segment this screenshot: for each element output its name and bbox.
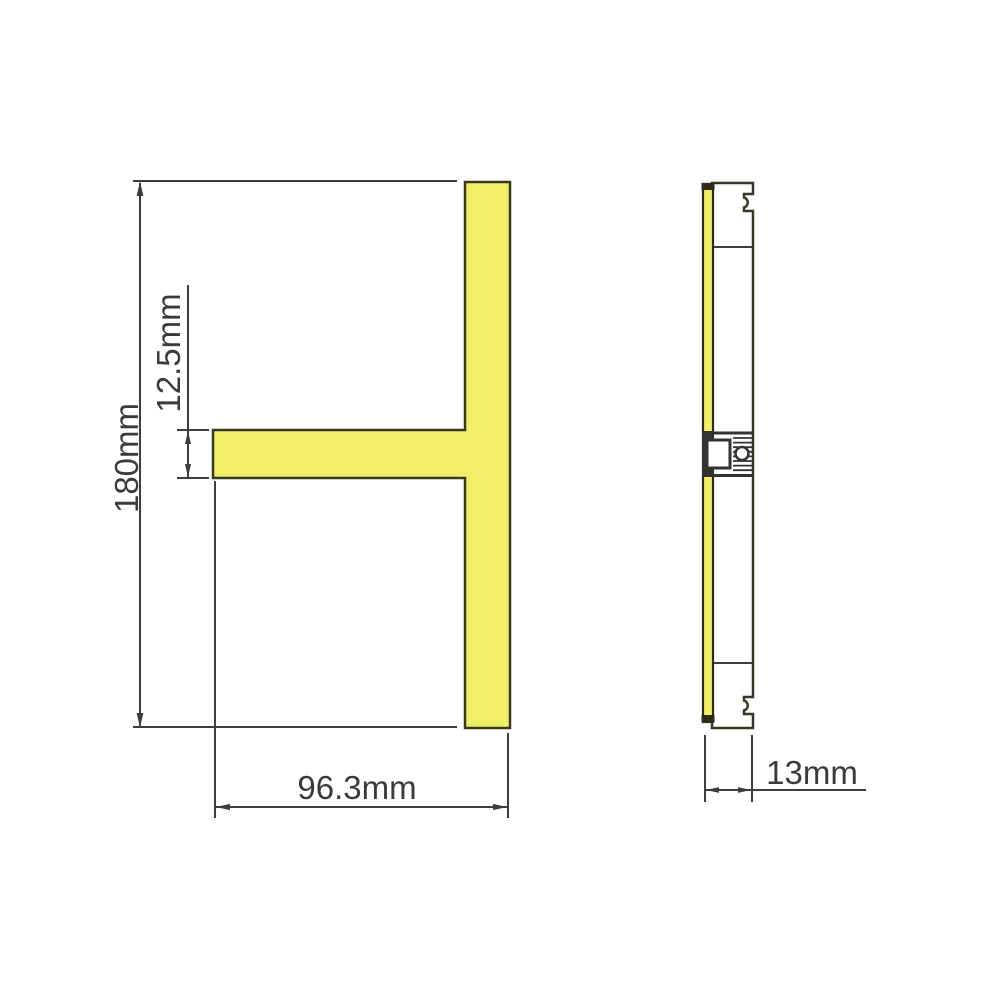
drawing-page: 180mm 12.5mm 96.3mm [0,0,1000,1000]
dimension-arm-thickness: 12.5mm [150,285,209,478]
arrow-right-icon [493,804,507,810]
arrow-up-icon [137,182,144,197]
height-dimension-label: 180mm [108,403,145,513]
technical-drawing-canvas: 180mm 12.5mm 96.3mm [0,0,1000,1000]
arrow-up-icon [185,431,191,444]
arrow-left-icon [706,787,719,793]
depth-dimension-label: 13mm [766,754,858,791]
led-strip-cap-bottom [702,715,715,722]
side-view: 13mm [702,183,867,802]
led-strip-cap-top [702,183,715,190]
width-dimension-label: 96.3mm [297,769,416,806]
arrow-left-icon [216,804,230,810]
clip-screw-icon [736,447,749,460]
arm-thickness-label: 12.5mm [150,293,187,412]
arrow-down-icon [185,464,191,477]
front-view: 180mm 12.5mm 96.3mm [108,181,510,818]
dimension-depth: 13mm [705,735,866,802]
profile-front-shape [213,182,510,728]
arrow-down-icon [137,713,144,728]
clip-box [707,440,730,468]
arrow-right-icon [738,787,751,793]
